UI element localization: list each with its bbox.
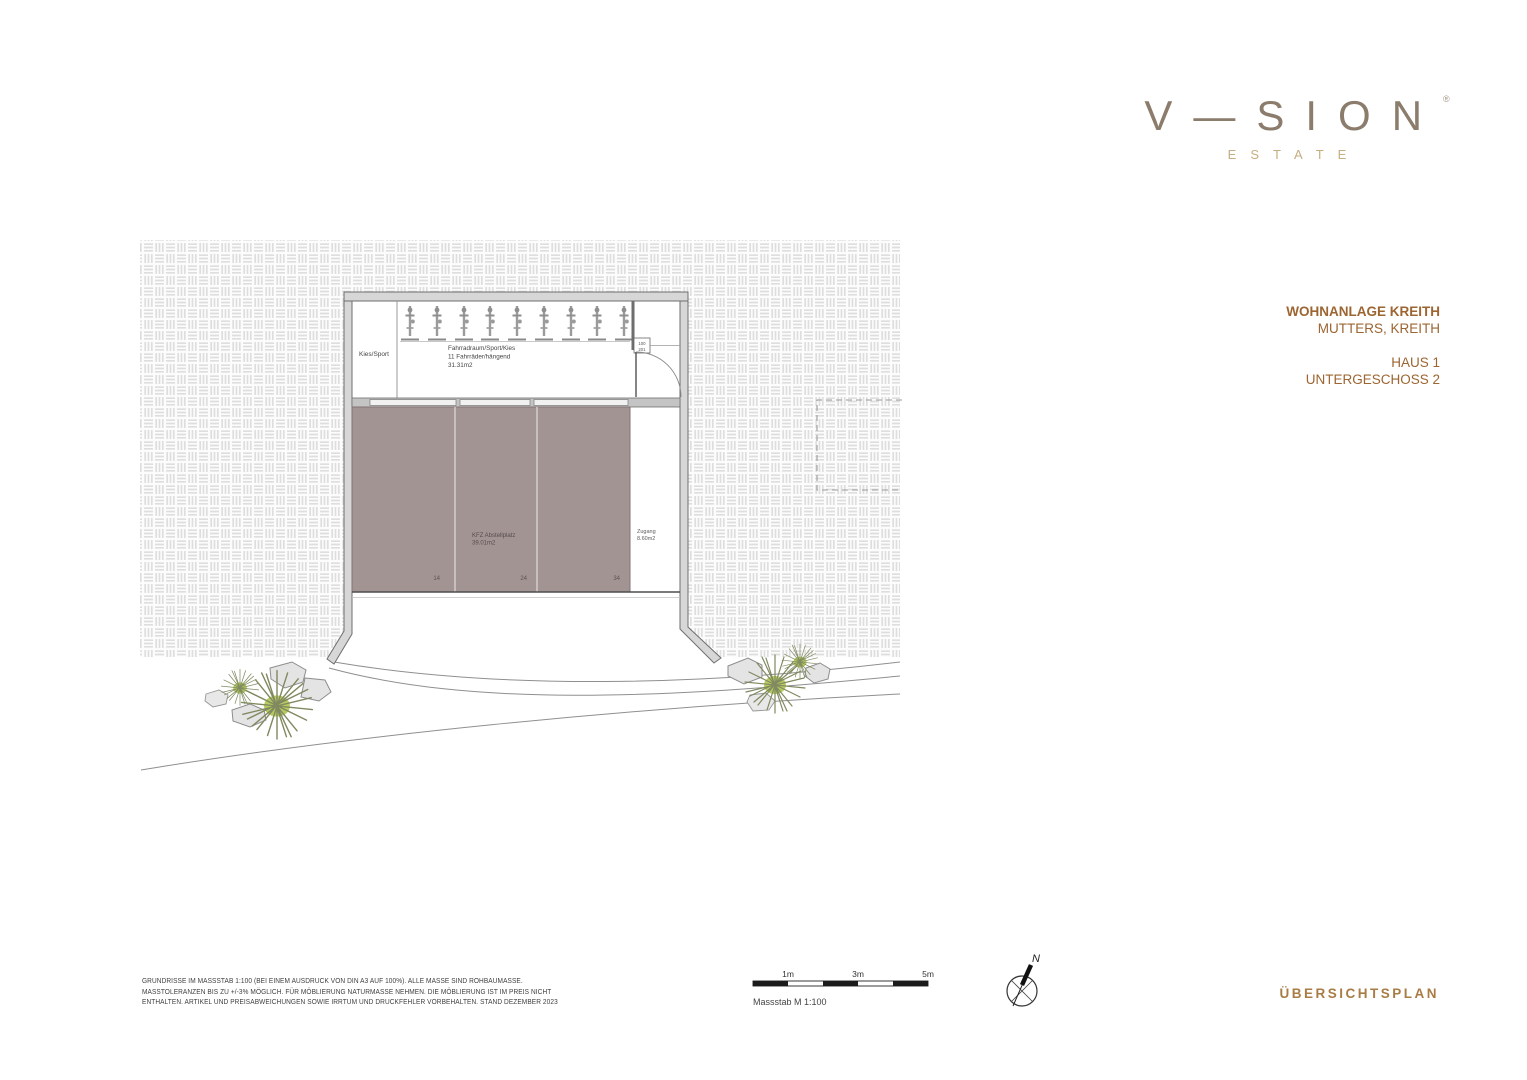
scale-label: 5m bbox=[922, 969, 934, 979]
disclaimer: GRUNDRISSE IM MASSSTAB 1:100 (BEI EINEM … bbox=[142, 976, 624, 1008]
bike-room-area: 31.31m2 bbox=[448, 362, 473, 369]
bike-room-name: Fahrradraum/Sport/Kies bbox=[448, 345, 515, 352]
scale-bar: 1m 3m 5m Massstab M 1:100 bbox=[753, 969, 934, 1007]
landscape-left bbox=[205, 662, 331, 739]
rock-icon bbox=[728, 658, 762, 684]
access-label-name: Zugang bbox=[637, 529, 656, 535]
scale-caption: Massstab M 1:100 bbox=[753, 997, 827, 1007]
floor-plan-drawing: Kies/Sport Fahrradraum/Sport/Kies 11 Fah… bbox=[0, 0, 1527, 1080]
access-label-area: 8.60m2 bbox=[637, 536, 655, 542]
scale-label: 1m bbox=[782, 969, 794, 979]
wall-top bbox=[344, 292, 688, 301]
door-tag-bottom: 201 bbox=[638, 347, 646, 352]
scale-label: 3m bbox=[852, 969, 864, 979]
rock-icon bbox=[205, 690, 228, 707]
disclaimer-line: ENTHALTEN. ARTIKEL UND PREISABWEICHUNGEN… bbox=[142, 997, 624, 1008]
parking-space-number: 34 bbox=[613, 576, 620, 582]
rock-icon bbox=[232, 704, 266, 727]
disclaimer-line: MASSTOLERANZEN BIS ZU +/-3% MÖGLICH. FÜR… bbox=[142, 987, 624, 998]
contour-line bbox=[141, 694, 900, 770]
parking-label-name: KFZ Abstellplatz bbox=[472, 533, 515, 539]
rock-icon bbox=[301, 678, 331, 701]
disclaimer-line: GRUNDRISSE IM MASSSTAB 1:100 (BEI EINEM … bbox=[142, 976, 624, 987]
plan-type-label: ÜBERSICHTSPLAN bbox=[1279, 986, 1439, 1001]
access-label: Zugang 8.60m2 bbox=[637, 529, 656, 542]
outdoor-area-label: Kies/Sport bbox=[359, 351, 389, 358]
parking-space-number: 24 bbox=[520, 576, 527, 582]
door-tag-top: 100 bbox=[638, 341, 646, 346]
parking-area bbox=[352, 407, 630, 592]
bike-room-capacity: 11 Fahrräder/hängend bbox=[448, 354, 511, 361]
parking-label-area: 39.01m2 bbox=[472, 541, 496, 547]
compass-north-label: N bbox=[1032, 953, 1040, 965]
garage-door-band bbox=[352, 398, 680, 407]
rock-icon bbox=[270, 662, 306, 688]
compass-icon: N bbox=[1007, 953, 1040, 1006]
parking-space-number: 14 bbox=[433, 576, 440, 582]
